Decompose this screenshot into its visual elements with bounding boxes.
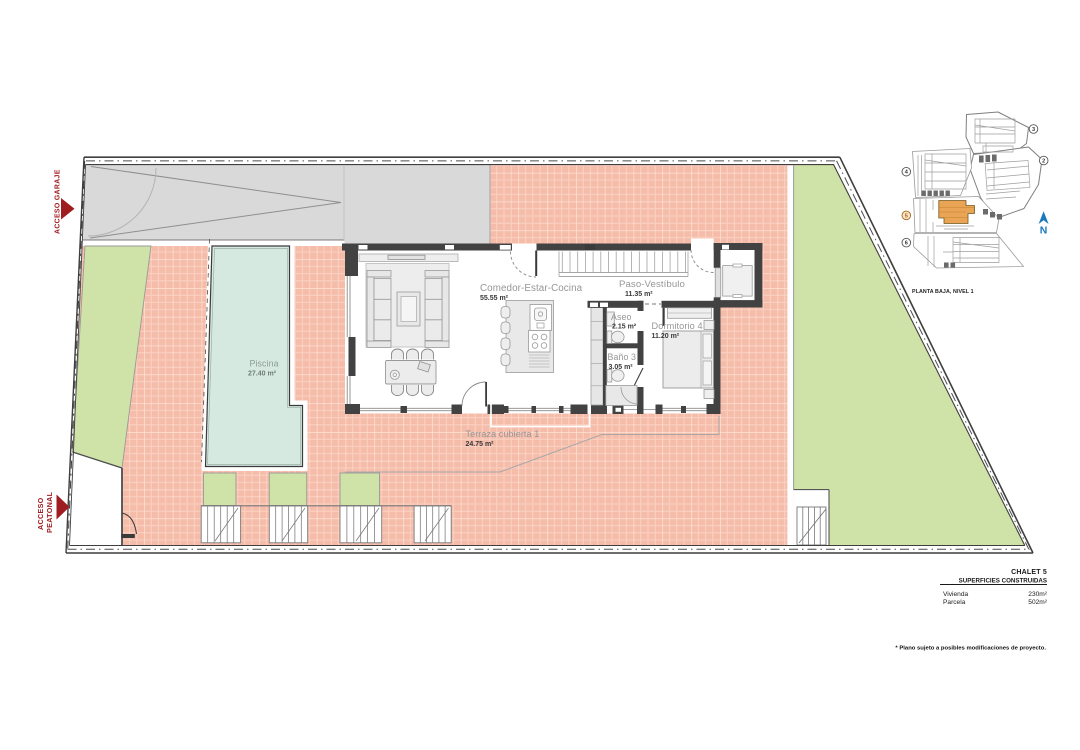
svg-text:6: 6 (905, 241, 908, 247)
svg-text:ACCESO GARAJE: ACCESO GARAJE (55, 169, 62, 234)
svg-text:SUPERFICIES CONSTRUIDAS: SUPERFICIES CONSTRUIDAS (959, 578, 1047, 585)
svg-text:N: N (1040, 225, 1048, 237)
svg-text:PEATONAL: PEATONAL (45, 491, 54, 533)
svg-text:Aseo: Aseo (611, 312, 631, 322)
svg-text:230m²: 230m² (1028, 591, 1047, 598)
svg-text:* Plano sujeto a posibles modi: * Plano sujeto a posibles modificaciones… (895, 646, 1046, 652)
svg-text:Piscina: Piscina (250, 359, 279, 369)
svg-text:CHALET 5: CHALET 5 (1011, 569, 1047, 576)
svg-text:Paso-Vestíbulo: Paso-Vestíbulo (619, 279, 685, 290)
svg-text:2.15 m²: 2.15 m² (612, 324, 637, 331)
svg-text:24.75 m²: 24.75 m² (466, 441, 495, 448)
svg-text:11.35 m²: 11.35 m² (625, 291, 653, 298)
svg-text:PLANTA BAJA, NIVEL 1: PLANTA BAJA, NIVEL 1 (912, 289, 974, 295)
svg-text:11.20 m²: 11.20 m² (652, 333, 680, 340)
svg-text:Terraza cubierta 1: Terraza cubierta 1 (466, 429, 540, 439)
svg-text:502m²: 502m² (1028, 599, 1047, 606)
svg-text:Baño 3: Baño 3 (608, 352, 636, 362)
svg-text:Parcela: Parcela (943, 599, 966, 606)
svg-text:3: 3 (1032, 127, 1035, 133)
svg-text:5: 5 (905, 213, 908, 219)
svg-text:2: 2 (1042, 159, 1045, 165)
svg-text:Comedor-Estar-Cocina: Comedor-Estar-Cocina (480, 283, 583, 294)
svg-text:ACCESO: ACCESO (36, 497, 45, 530)
svg-text:27.40 m²: 27.40 m² (248, 371, 277, 378)
svg-text:Dormitorio 4: Dormitorio 4 (652, 321, 703, 331)
svg-text:3.05 m²: 3.05 m² (609, 364, 634, 371)
svg-text:Vivienda: Vivienda (943, 591, 969, 598)
svg-text:55.55 m²: 55.55 m² (480, 295, 509, 302)
